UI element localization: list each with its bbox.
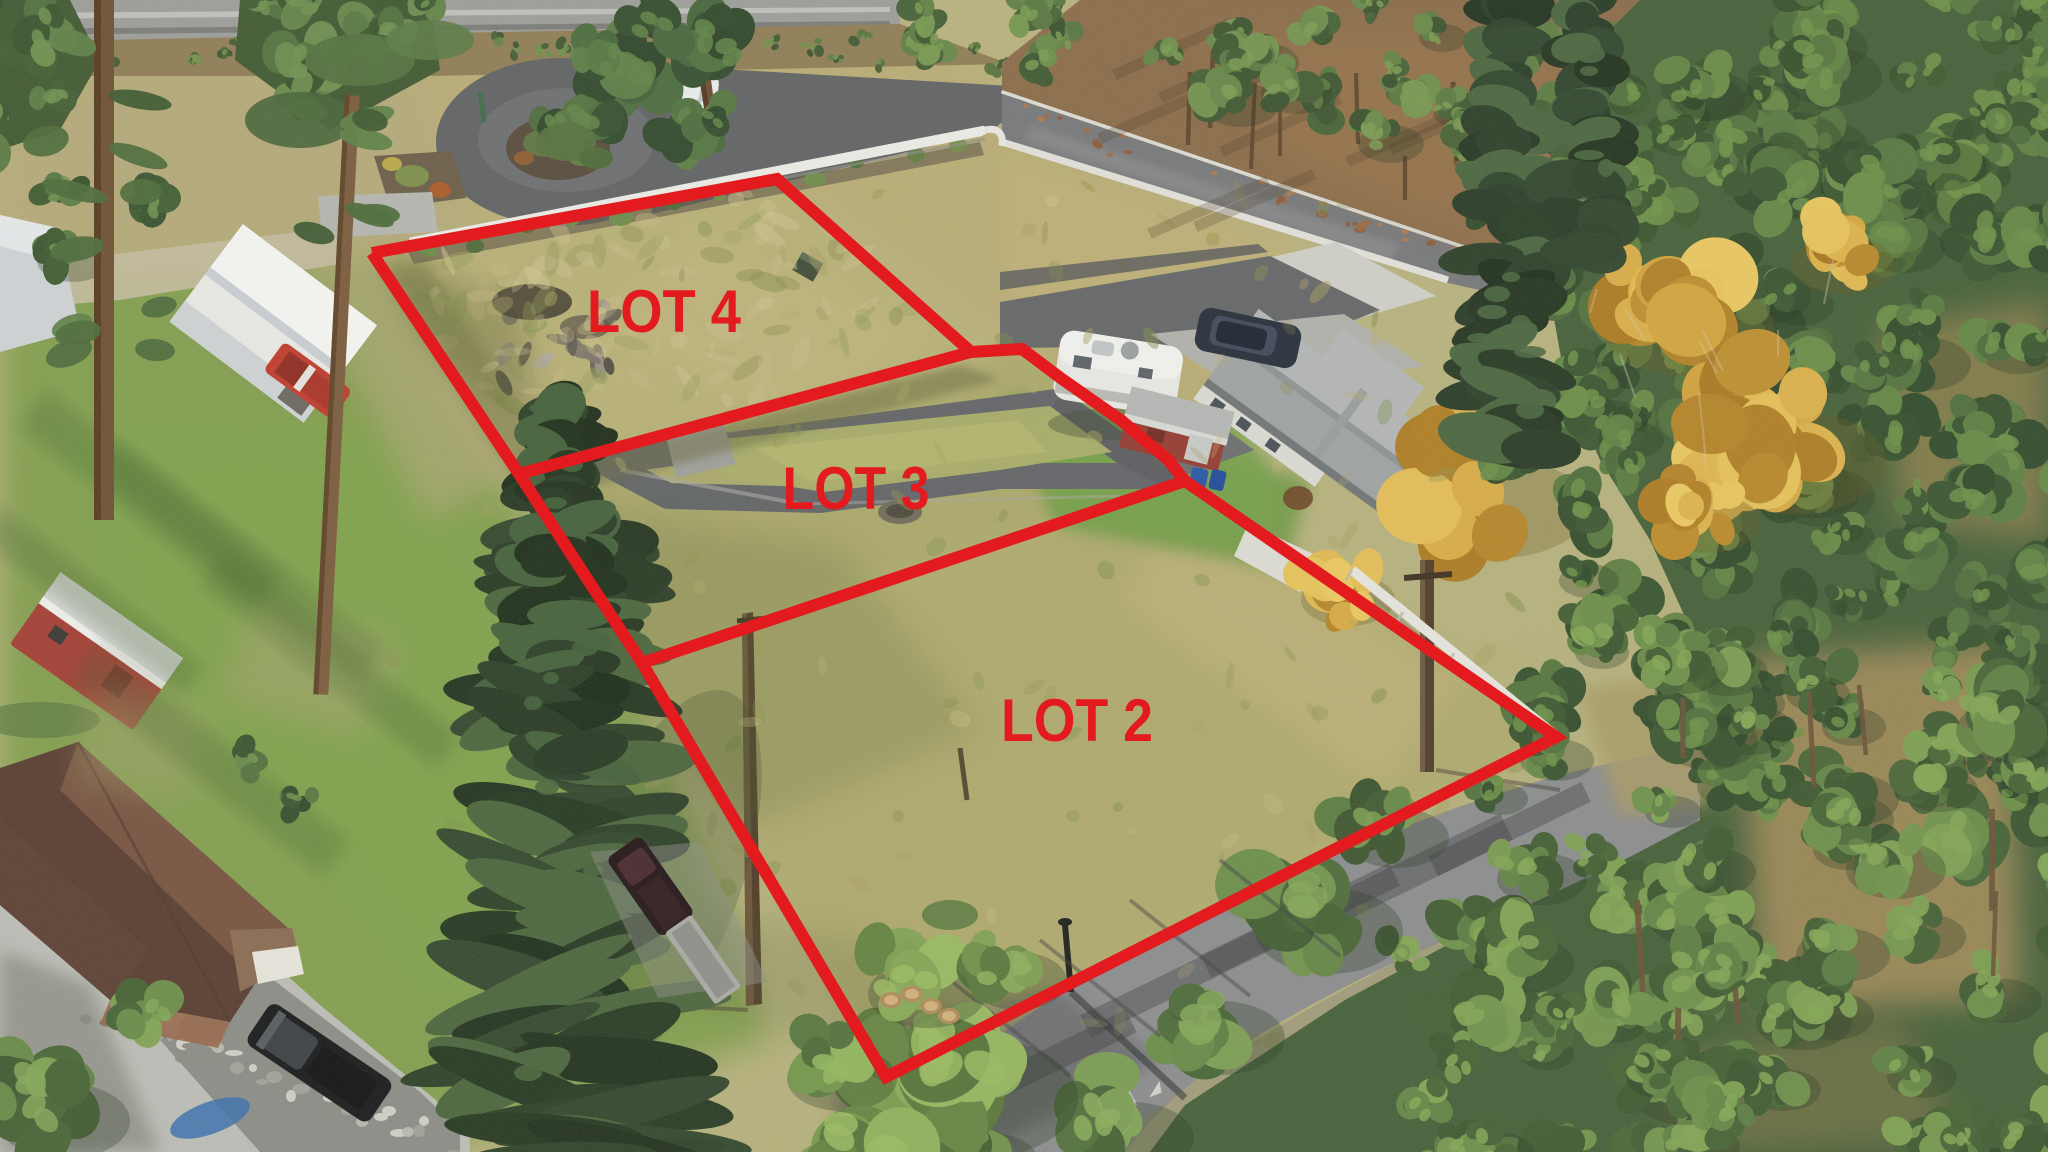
svg-text:LOT 4: LOT 4 xyxy=(587,278,742,345)
svg-text:LOT 3: LOT 3 xyxy=(783,455,930,522)
svg-text:LOT 2: LOT 2 xyxy=(1001,687,1153,754)
